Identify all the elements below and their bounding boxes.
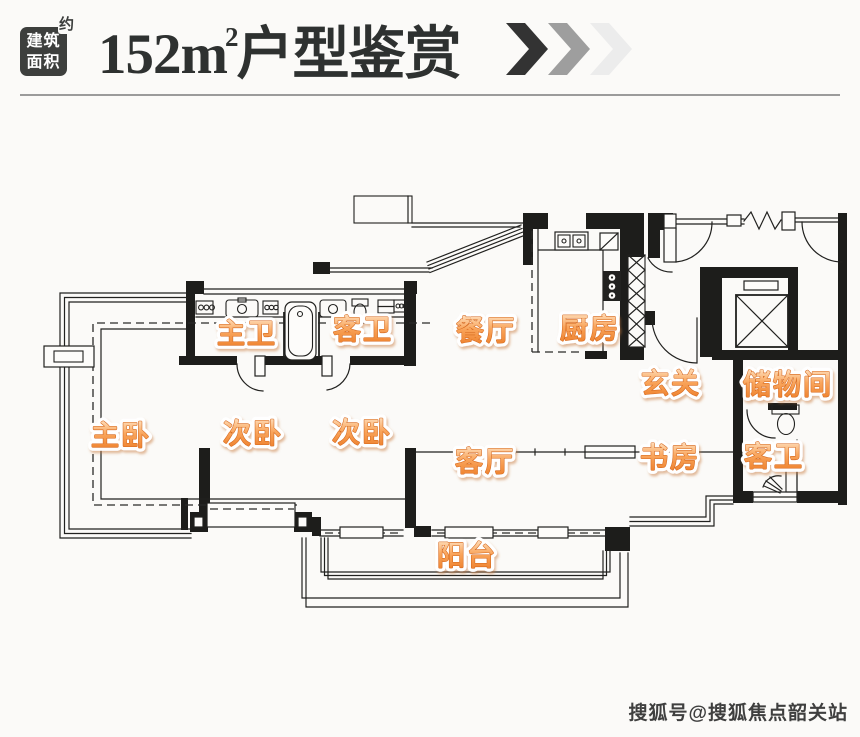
approx-label: 约	[58, 13, 75, 34]
badge-line2: 面积	[20, 52, 67, 73]
elevator-door-sill	[744, 281, 778, 290]
storage-door-arc	[747, 410, 775, 438]
room-label-guest-bath: 客卫客卫	[333, 313, 393, 346]
shower-head-icon	[763, 476, 782, 493]
chevron-1-icon	[506, 23, 548, 75]
room-label-dining: 餐厅餐厅	[456, 314, 516, 347]
area-badge: 建筑 面积	[20, 27, 67, 76]
header-divider	[20, 94, 840, 96]
svg-text:次卧: 次卧	[223, 417, 283, 450]
chevron-2-icon	[548, 23, 590, 75]
svg-text:厨房: 厨房	[560, 312, 620, 345]
kitchen-sink-icon	[555, 232, 588, 250]
room-label-guest-bath-2: 客卫客卫	[744, 440, 804, 473]
room-label-master-bath: 主卫主卫	[217, 317, 277, 350]
svg-text:主卧: 主卧	[91, 419, 151, 452]
page-title: 152m2户型鉴赏	[98, 8, 460, 90]
window-seat	[207, 503, 295, 527]
foyer-door-arc	[652, 318, 697, 363]
dashed-lines	[93, 231, 600, 533]
bathtub-icon	[285, 302, 316, 360]
title-area: 152m	[98, 23, 227, 86]
room-label-balcony: 阳台阳台	[437, 539, 497, 572]
svg-text:餐厅: 餐厅	[456, 314, 516, 347]
title-superscript: 2	[225, 22, 238, 52]
floor-plan: 主卫主卫 客卫客卫 餐厅餐厅 厨房厨房 玄关玄关 储物间储物间 主卧主卧 次卧次…	[0, 0, 860, 737]
entry-door-arc	[676, 222, 712, 262]
room-label-bedroom-2: 次卧次卧	[223, 417, 283, 450]
badge-line1: 建筑	[20, 31, 67, 52]
watermark: 搜狐号@搜狐焦点韶关站	[628, 698, 848, 725]
room-label-master-bedroom: 主卧主卧	[91, 419, 151, 452]
svg-text:次卧: 次卧	[332, 416, 392, 449]
header: 建筑 面积 约 152m2户型鉴赏	[0, 0, 860, 100]
svg-text:玄关: 玄关	[641, 367, 701, 400]
svg-text:客厅: 客厅	[455, 445, 515, 478]
svg-text:阳台: 阳台	[437, 539, 497, 572]
room-label-storage: 储物间储物间	[743, 368, 833, 401]
page: 建筑 面积 约 152m2户型鉴赏	[0, 0, 860, 737]
chevron-arrows-icon	[506, 22, 641, 76]
svg-text:客卫: 客卫	[744, 440, 804, 473]
ac-ledge	[44, 346, 94, 367]
svg-text:储物间: 储物间	[743, 368, 833, 401]
room-label-kitchen: 厨房厨房	[560, 312, 620, 345]
elevator-icon	[736, 295, 788, 347]
room-label-study: 书房书房	[640, 441, 700, 474]
room-label-bedroom-3: 次卧次卧	[332, 416, 392, 449]
svg-text:主卫: 主卫	[217, 317, 277, 350]
stove-icon	[603, 271, 621, 301]
room-label-living: 客厅客厅	[455, 445, 515, 478]
title-text: 户型鉴赏	[236, 23, 460, 86]
svg-text:书房: 书房	[640, 441, 700, 474]
room-label-foyer: 玄关玄关	[641, 367, 701, 400]
svg-text:客卫: 客卫	[333, 313, 393, 346]
shaft-lattice-icon	[628, 255, 645, 347]
chevron-3-icon	[590, 23, 632, 75]
